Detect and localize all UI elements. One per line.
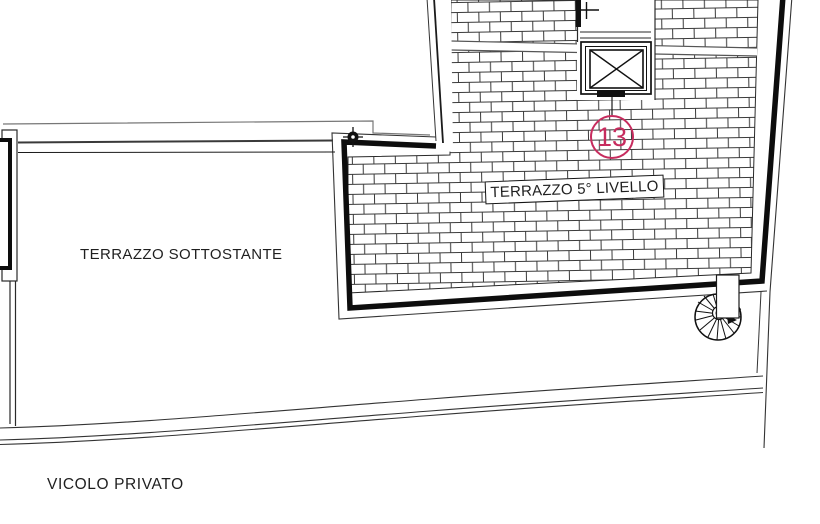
unit-number-badge: 13: [590, 115, 634, 159]
elevator-cross-icon: [581, 42, 651, 94]
lower-terrace-walls: [3, 121, 430, 153]
stair-landing: [717, 275, 740, 318]
street-label: VICOLO PRIVATO: [47, 476, 184, 494]
road-lines: [0, 376, 763, 445]
lift-shaft: [576, 0, 656, 115]
lower-terrace-label: TERRAZZO SOTTOSTANTE: [80, 246, 282, 263]
left-boundary-wall: [10, 281, 16, 426]
floor-plan: TERRAZZO 5° LIVELLO TERRAZZO SOTTOSTANTE…: [0, 0, 820, 524]
left-pillar: [0, 130, 17, 281]
